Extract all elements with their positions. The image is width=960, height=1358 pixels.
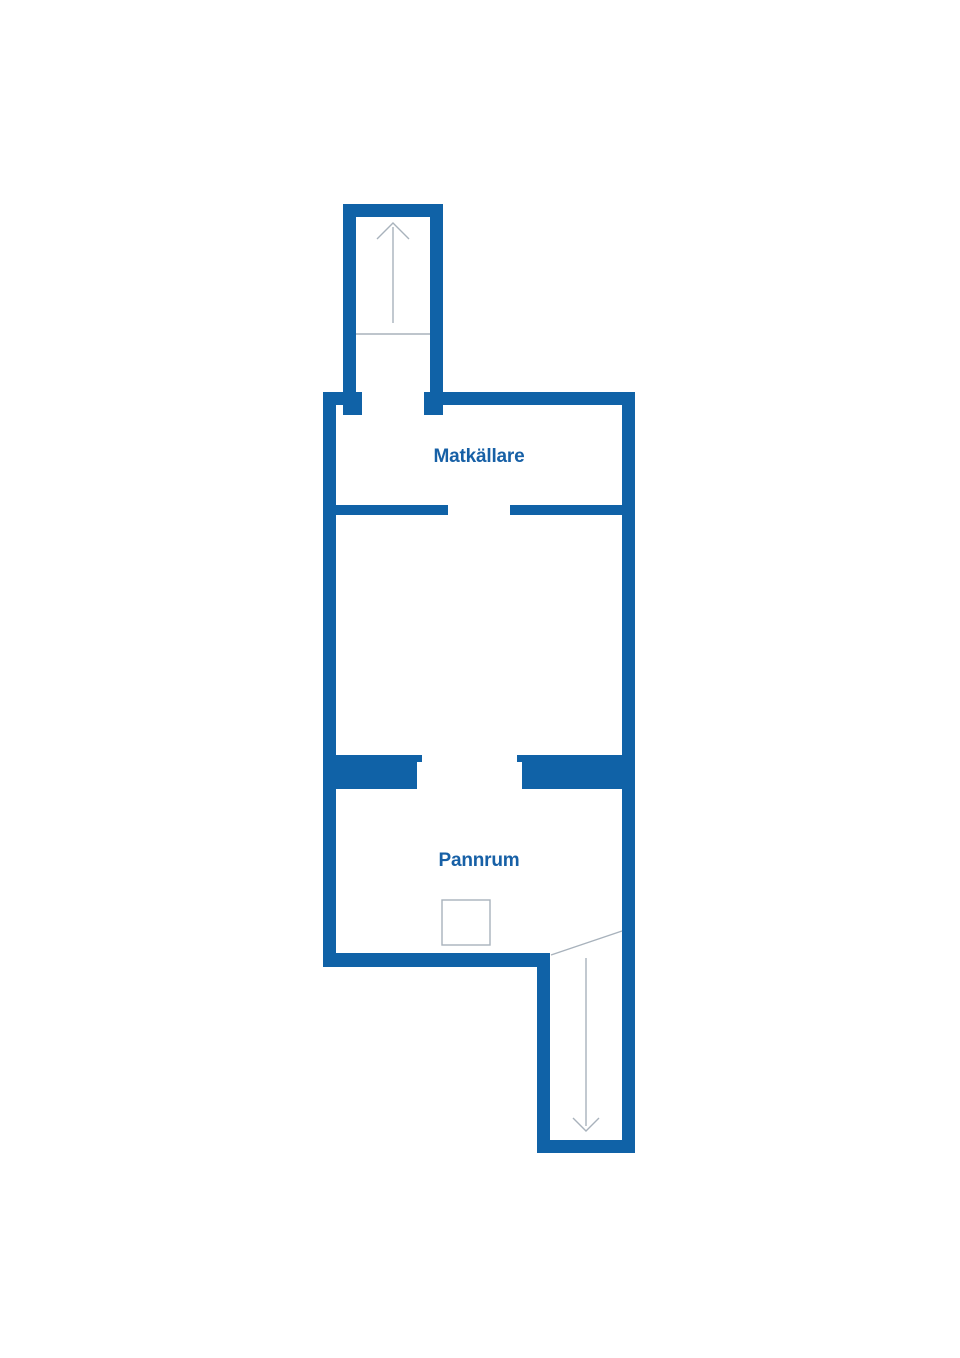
room-label-pannrum: Pannrum bbox=[336, 850, 622, 872]
partition-wall-left-segment bbox=[336, 505, 448, 515]
right-exterior-wall bbox=[622, 392, 635, 1153]
shaft-left-wall bbox=[343, 204, 356, 392]
stairs-up bbox=[356, 223, 430, 334]
room-label-matkallare: Matkällare bbox=[336, 446, 622, 468]
thick-wall-right-segment bbox=[522, 755, 622, 789]
boiler-square bbox=[442, 900, 490, 945]
arrow-down-icon bbox=[573, 1118, 599, 1131]
left-exterior-wall bbox=[323, 392, 336, 967]
corridor-left-wall bbox=[537, 953, 550, 1153]
arrow-up-icon bbox=[377, 223, 409, 239]
corridor-bottom-wall bbox=[537, 1140, 635, 1153]
symbols-overlay bbox=[0, 0, 960, 1358]
thick-wall-left-segment bbox=[336, 755, 417, 789]
floorplan-canvas: Matkällare Pannrum bbox=[0, 0, 960, 1358]
top-wall-right-segment bbox=[424, 392, 635, 405]
partition-wall-right-segment bbox=[510, 505, 622, 515]
stair-break-diagonal-line bbox=[551, 931, 622, 955]
shaft-top-wall bbox=[343, 204, 443, 217]
stairs-down bbox=[551, 931, 622, 1131]
shaft-right-wall bbox=[430, 204, 443, 392]
pannrum-bottom-wall bbox=[323, 953, 550, 967]
